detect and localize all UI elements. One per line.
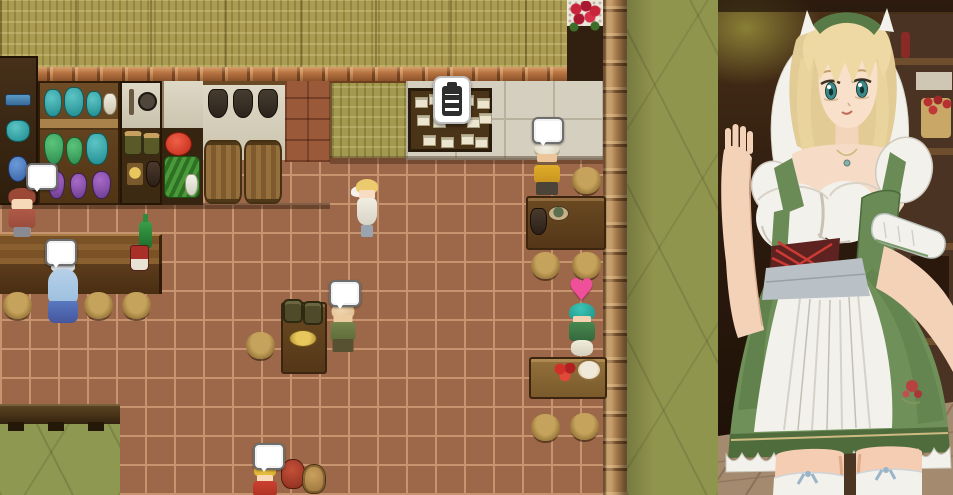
- speech-bubble-icon: [45, 239, 77, 266]
- stool-3: [122, 292, 151, 319]
- stocking-right: [856, 469, 922, 495]
- waitress-sprite[interactable]: [352, 177, 382, 243]
- patron-blue-robe-feet: [48, 301, 78, 323]
- npc-layer: ♥: [0, 0, 718, 495]
- waitress-sprite-body: [357, 198, 377, 225]
- speech-bubble-icon: [26, 163, 58, 190]
- patron-turban-body: [534, 165, 560, 183]
- white-boxes: [916, 72, 952, 90]
- red-bottle: [901, 32, 910, 58]
- speech-bubble-icon: [329, 280, 361, 307]
- patron-blue-robe-body: [48, 269, 78, 303]
- speech-bubble-icon: [253, 443, 285, 470]
- patron-red-hair-body: [8, 209, 35, 228]
- stool-4: [246, 332, 275, 359]
- screenshot-root: ♥: [0, 0, 953, 495]
- waitress-sprite-feet: [361, 225, 373, 237]
- patron-red-hair-feet: [13, 227, 30, 237]
- stool-6: [531, 252, 560, 279]
- waitress-illustration: [718, 0, 953, 495]
- patron-blonde-body: [253, 481, 277, 495]
- patron-turban-feet: [536, 182, 558, 195]
- stool-9: [570, 413, 599, 440]
- pendant: [844, 160, 850, 166]
- game-map: ♥: [0, 0, 718, 495]
- patron-teal-hair[interactable]: [566, 303, 598, 358]
- heart-icon: ♥: [568, 278, 595, 304]
- patron-bald-feet: [332, 339, 353, 352]
- waitress-art: [718, 0, 953, 495]
- leg-gap-shadow: [842, 453, 858, 495]
- patron-teal-hair-body: [569, 322, 595, 341]
- stool-8: [531, 414, 560, 441]
- stool-5: [572, 167, 601, 194]
- patron-teal-hair-feet: [571, 340, 593, 356]
- stool-2: [84, 292, 113, 319]
- speech-bubble-icon: [532, 117, 564, 144]
- ceiling-beam: [718, 0, 953, 12]
- stool-1: [3, 292, 32, 319]
